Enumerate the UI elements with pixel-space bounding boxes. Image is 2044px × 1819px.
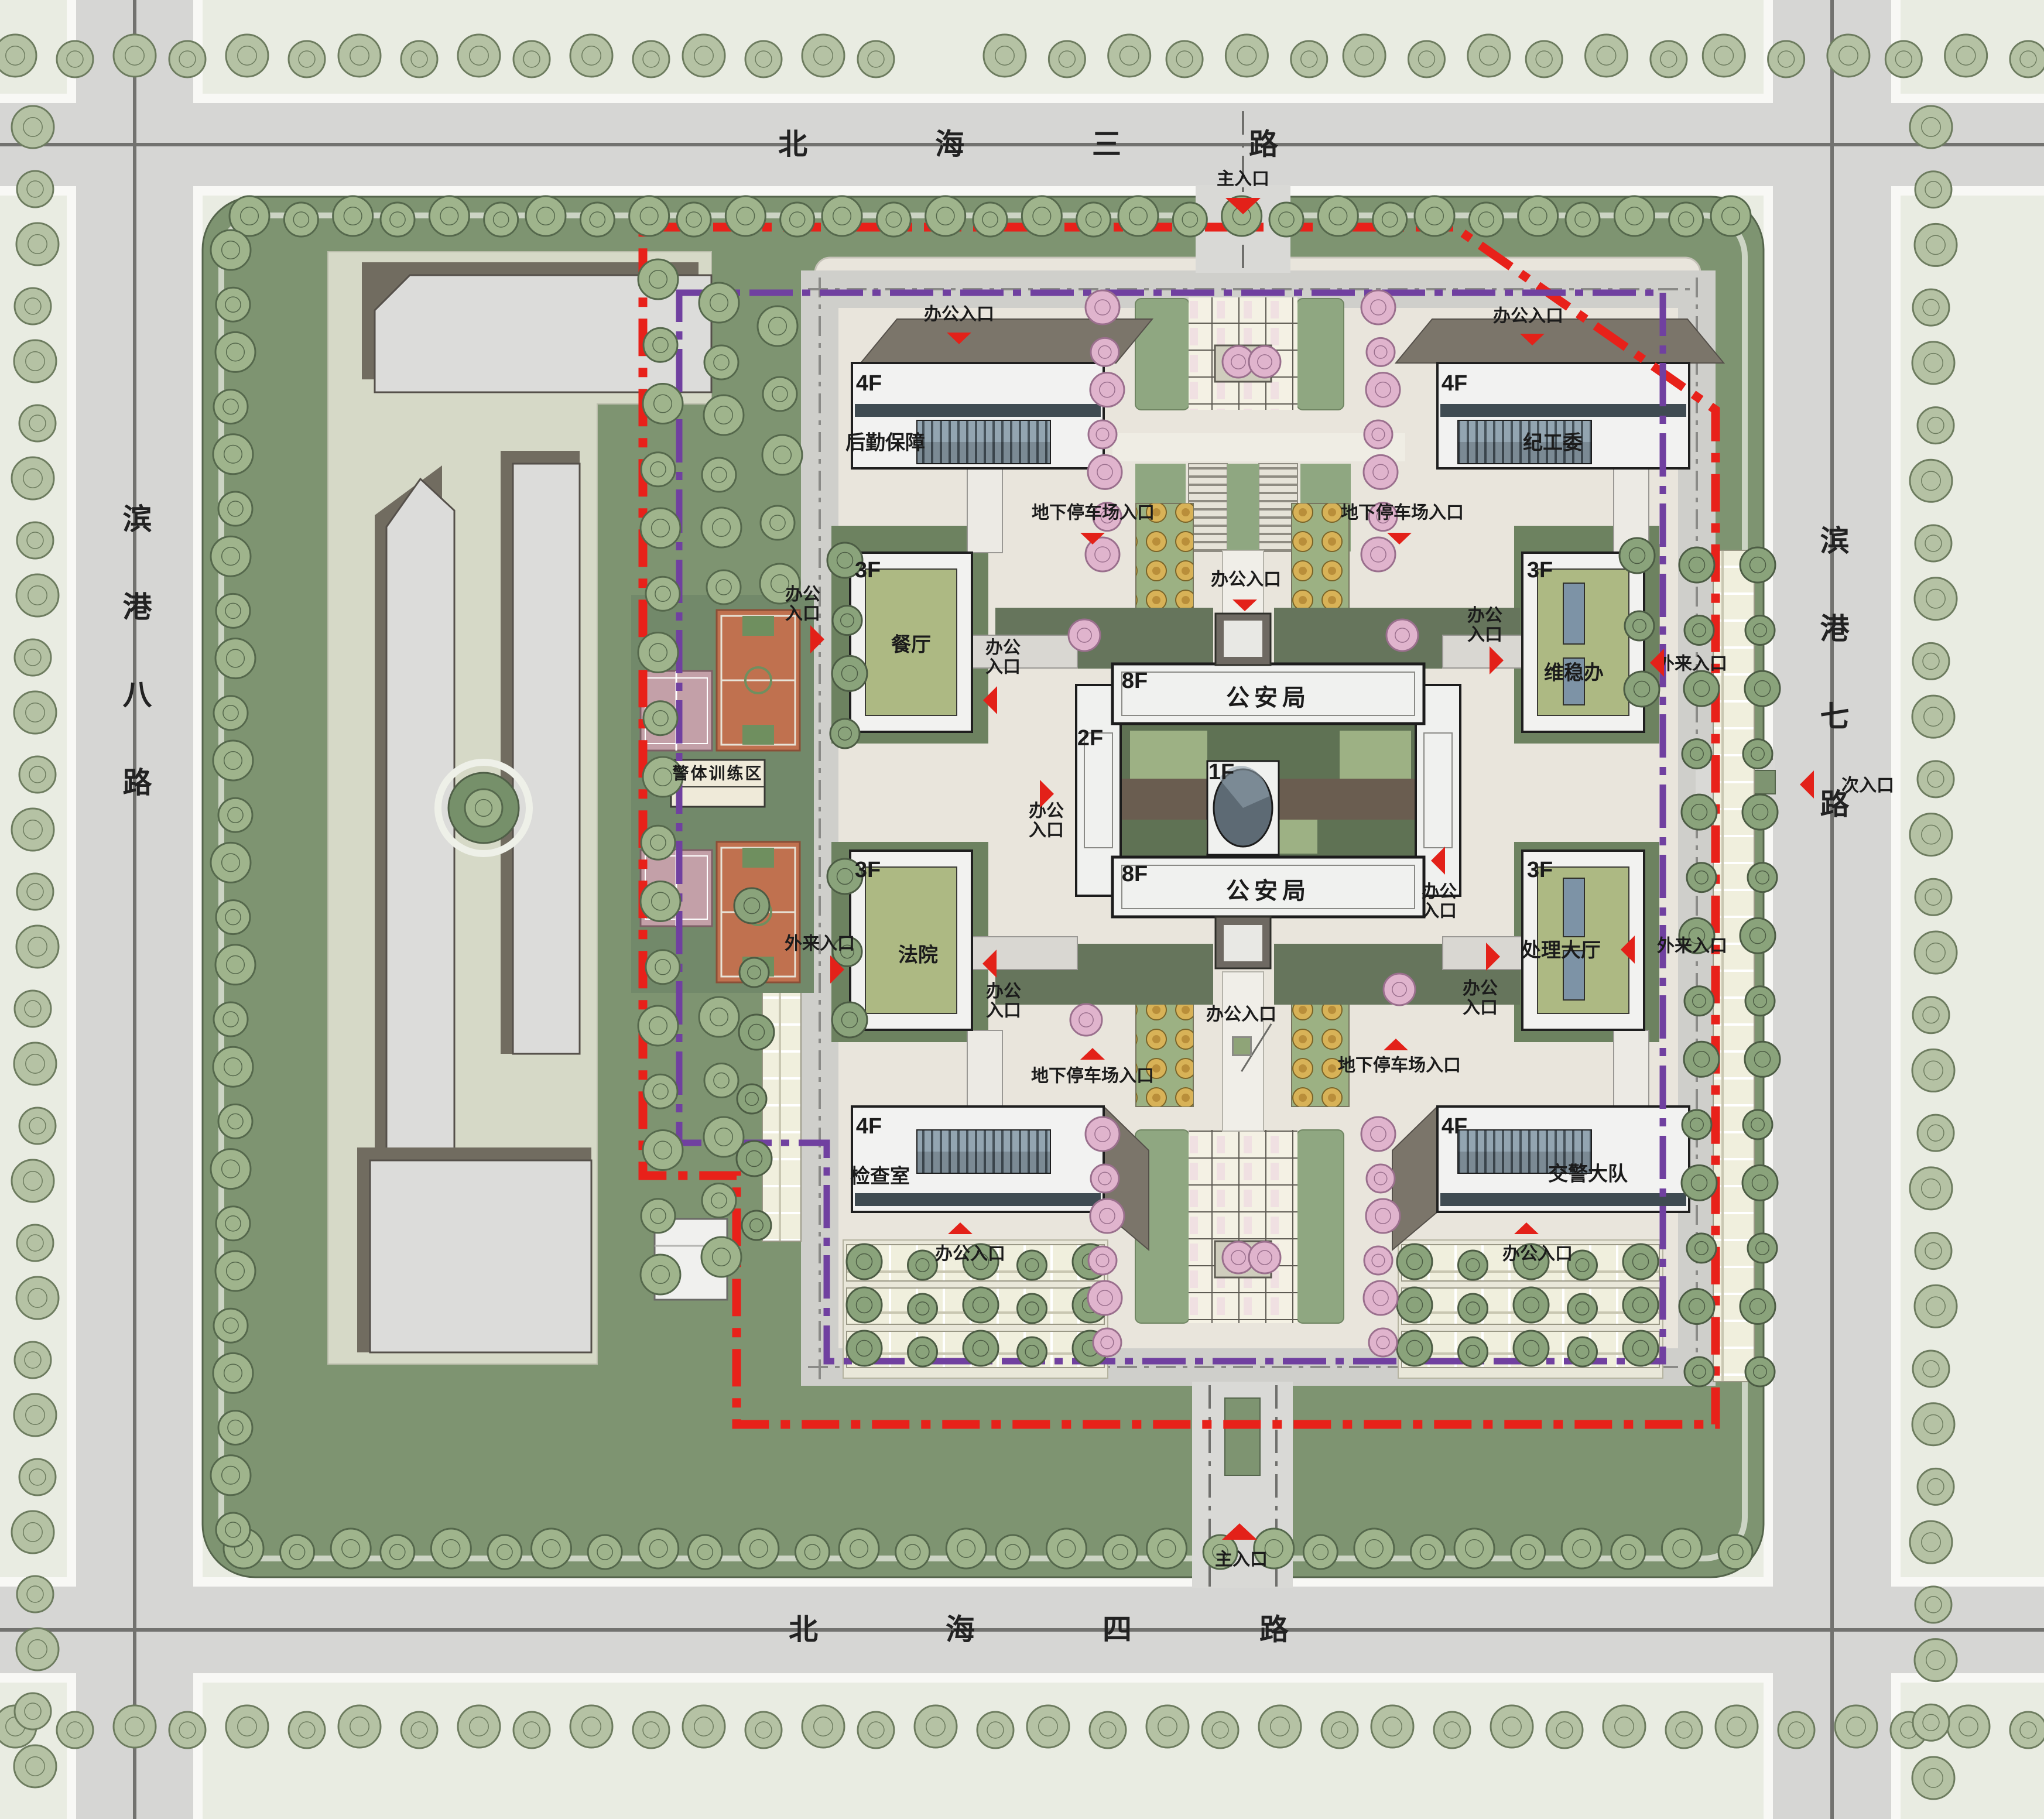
tree-icon — [704, 1064, 738, 1098]
tree-icon — [1918, 761, 1954, 797]
tree-icon — [214, 390, 248, 424]
tree-icon — [1745, 1357, 1775, 1386]
basketball-court-upper — [717, 610, 800, 751]
tree-icon — [946, 1529, 986, 1568]
tree-icon — [216, 594, 250, 628]
tree-icon — [745, 41, 782, 77]
tree-icon — [1511, 1535, 1545, 1569]
tree-icon — [847, 1287, 882, 1323]
tree-icon — [215, 945, 255, 985]
tree-icon — [1468, 35, 1510, 77]
tree-icon — [1173, 203, 1207, 237]
tree-icon — [1778, 1712, 1814, 1748]
building-label-public-security: 公安局 — [1226, 878, 1310, 904]
tree-icon — [381, 1535, 415, 1569]
tree-icon — [734, 888, 769, 923]
building-label-stability-office: 维稳办 — [1544, 662, 1604, 684]
floor-tag: 3F — [1527, 559, 1553, 583]
tree-icon — [570, 1705, 612, 1748]
tree-icon — [12, 1511, 54, 1553]
tree-icon — [1454, 1529, 1494, 1568]
tree-icon — [1568, 1337, 1597, 1366]
tree-icon — [1679, 547, 1714, 583]
main-entrance-north-label: 主入口 — [1217, 170, 1269, 189]
tree-icon — [114, 1705, 156, 1748]
central-complex — [1076, 614, 1460, 968]
tree-icon — [1364, 1281, 1398, 1315]
tree-icon — [16, 223, 59, 265]
tree-icon — [429, 196, 469, 236]
tree-icon — [1415, 196, 1454, 236]
tree-icon — [1491, 1705, 1533, 1748]
tree-icon — [1366, 373, 1400, 407]
tree-icon — [17, 522, 53, 559]
entrance-arrow-icon — [1486, 943, 1500, 971]
entrance-arrow-icon — [1514, 1222, 1539, 1234]
tree-icon — [725, 196, 765, 236]
tree-icon — [1369, 1328, 1397, 1356]
tree-icon — [677, 203, 711, 237]
tree-icon — [289, 41, 325, 77]
office-entrance-label: 办公入口 — [1493, 307, 1563, 326]
tree-icon — [213, 1353, 253, 1393]
tree-icon — [745, 1712, 782, 1748]
tree-icon — [1562, 1529, 1601, 1568]
tree-icon — [57, 1712, 93, 1748]
tree-icon — [1743, 739, 1772, 769]
tree-icon — [57, 41, 93, 77]
tree-icon — [338, 35, 381, 77]
tree-icon — [12, 809, 54, 851]
entrance-arrow-icon — [1621, 936, 1635, 964]
tree-icon — [926, 196, 965, 236]
tree-icon — [14, 691, 56, 734]
road-label-north: 北海三路 — [778, 129, 1406, 161]
floor-tag: 3F — [855, 559, 881, 583]
site-plan: 北海三路 北海四路 滨港八路 滨港七路 主入口 主入口 次入口 办公入口 办公入… — [0, 0, 2044, 1819]
tree-icon — [996, 1535, 1030, 1569]
tree-icon — [1651, 41, 1687, 77]
tree-icon — [19, 756, 56, 793]
tree-icon — [1915, 1587, 1951, 1623]
tree-icon — [896, 1535, 930, 1569]
tree-icon — [211, 1149, 251, 1189]
tree-icon — [763, 377, 797, 411]
tree-icon — [1526, 41, 1562, 77]
tree-icon — [1586, 35, 1628, 77]
building-label-processing-hall: 处理大厅 — [1521, 940, 1601, 961]
tree-icon — [830, 719, 860, 748]
floor-tag: 8F — [1122, 862, 1148, 887]
tree-icon — [643, 1131, 683, 1170]
tree-icon — [15, 288, 51, 324]
tree-icon — [1225, 35, 1268, 77]
tree-icon — [1018, 1294, 1047, 1323]
tree-icon — [216, 287, 250, 321]
tree-icon — [214, 696, 248, 730]
tree-icon — [1910, 1167, 1952, 1210]
tree-icon — [513, 41, 550, 77]
flag-marker — [1232, 1036, 1252, 1056]
tree-icon — [984, 35, 1026, 77]
entrance-arrow-icon — [947, 333, 971, 344]
tree-icon — [1603, 1705, 1645, 1748]
tree-icon — [401, 1712, 437, 1748]
training-zone-label: 警体训练区 — [672, 765, 763, 783]
tree-icon — [14, 1043, 56, 1085]
tree-icon — [1088, 1246, 1117, 1275]
tree-icon — [638, 1006, 678, 1046]
tree-icon — [1915, 172, 1951, 208]
tree-icon — [643, 328, 677, 362]
tree-icon — [1915, 1639, 1957, 1681]
tree-icon — [1748, 1234, 1777, 1263]
tree-icon — [280, 1535, 314, 1569]
tree-icon — [14, 340, 56, 382]
tree-icon — [1913, 997, 1949, 1033]
parking-entrance-label: 地下停车场入口 — [1338, 1056, 1461, 1075]
tree-icon — [1915, 525, 1951, 561]
tree-icon — [643, 701, 677, 735]
tree-icon — [1915, 224, 1957, 266]
tree-icon — [839, 1529, 879, 1568]
tree-icon — [761, 506, 795, 540]
tree-icon — [1745, 986, 1775, 1016]
building-label-inspection-room: 检查室 — [850, 1166, 910, 1187]
floor-tag: 3F — [1527, 858, 1553, 883]
tree-icon — [638, 633, 678, 673]
tree-icon — [1410, 1535, 1444, 1569]
tree-icon — [1568, 1294, 1597, 1323]
office-entrance-label: 办公入口 — [783, 585, 823, 624]
visitor-entrance-label: 外来入口 — [785, 934, 855, 954]
tree-icon — [1768, 41, 1805, 77]
tree-icon — [822, 196, 862, 236]
tree-icon — [1373, 203, 1407, 237]
entrance-arrow-icon — [1232, 600, 1257, 611]
tree-icon — [1684, 1042, 1719, 1077]
building-label-traffic-police: 交警大队 — [1548, 1163, 1628, 1185]
entrance-arrow-icon — [1040, 780, 1054, 808]
tree-icon — [211, 1455, 251, 1495]
entrance-arrow-icon — [1650, 649, 1664, 677]
tree-icon — [1666, 1712, 1702, 1748]
tree-icon — [1614, 196, 1654, 236]
tree-icon — [643, 384, 683, 424]
tree-icon — [1742, 1165, 1778, 1200]
entrance-arrow-icon — [1080, 533, 1105, 544]
tree-icon — [213, 741, 253, 780]
tree-icon — [1354, 1529, 1394, 1568]
tree-icon — [1046, 1529, 1086, 1568]
tree-icon — [465, 789, 502, 827]
tree-icon — [458, 35, 500, 77]
tree-icon — [877, 203, 910, 237]
tree-icon — [1146, 1705, 1189, 1748]
tree-icon — [1291, 41, 1327, 77]
tree-icon — [646, 950, 680, 984]
tree-icon — [832, 1002, 867, 1037]
parking-entrance-label: 地下停车场入口 — [1341, 503, 1464, 523]
tree-icon — [858, 41, 894, 77]
tree-icon — [1682, 1110, 1711, 1139]
tree-icon — [737, 1084, 766, 1114]
parking-entrance-label: 地下停车场入口 — [1032, 503, 1155, 523]
tree-icon — [641, 453, 675, 487]
tree-icon — [214, 1308, 248, 1342]
tree-icon — [1745, 671, 1780, 706]
tree-icon — [1088, 1281, 1122, 1315]
tree-icon — [1910, 106, 1952, 148]
entrance-arrow-icon — [983, 686, 997, 714]
tree-icon — [802, 35, 844, 77]
road-label-west: 滨港八路 — [119, 503, 151, 855]
tree-icon — [1514, 1331, 1549, 1366]
tree-icon — [908, 1294, 937, 1323]
tree-icon — [1343, 35, 1385, 77]
tree-icon — [1086, 1117, 1119, 1151]
building-label-canteen: 餐厅 — [891, 634, 931, 656]
tree-icon — [847, 1244, 882, 1279]
road-label-east: 滨港七路 — [1816, 525, 1848, 876]
tree-icon — [1947, 1705, 1990, 1748]
tree-icon — [639, 1529, 679, 1568]
tree-icon — [488, 1535, 522, 1569]
tree-icon — [16, 926, 59, 968]
tree-icon — [1620, 538, 1655, 573]
tree-icon — [1249, 1242, 1281, 1273]
tree-icon — [1458, 1337, 1488, 1366]
tree-icon — [1546, 1712, 1583, 1748]
tree-icon — [1684, 1357, 1714, 1386]
west-south-building — [370, 1160, 591, 1352]
west-east-building — [513, 464, 580, 1054]
tree-icon — [580, 203, 614, 237]
main-entrance-south-arrow-icon — [1222, 1523, 1257, 1540]
tree-icon — [1684, 616, 1714, 645]
office-entrance-label: 办公入口 — [935, 1245, 1005, 1264]
tree-icon — [1259, 1705, 1301, 1748]
tree-icon — [1364, 1246, 1392, 1275]
tree-icon — [1910, 814, 1952, 856]
tree-icon — [1049, 41, 1085, 77]
tree-icon — [1069, 619, 1100, 651]
tree-icon — [114, 35, 156, 77]
tree-icon — [513, 1712, 550, 1748]
tree-icon — [833, 606, 862, 635]
office-entrance-label: 办公入口 — [1419, 882, 1459, 921]
tree-icon — [12, 1160, 54, 1202]
tree-icon — [17, 1225, 53, 1261]
tree-icon — [1386, 619, 1418, 651]
tree-icon — [1088, 420, 1117, 448]
entrance-arrow-icon — [1384, 1039, 1408, 1050]
office-entrance-label: 办公入口 — [1206, 1005, 1276, 1025]
tree-icon — [683, 35, 725, 77]
entrance-arrow-icon — [1490, 646, 1504, 674]
tree-icon — [1118, 196, 1158, 236]
tree-icon — [1623, 1331, 1658, 1366]
tree-icon — [211, 842, 251, 882]
entrance-arrow-icon — [1080, 1048, 1105, 1060]
tree-icon — [331, 1529, 371, 1568]
office-entrance-label: 办公入口 — [983, 638, 1023, 677]
tree-icon — [1912, 1757, 1954, 1799]
tree-icon — [1913, 289, 1949, 326]
entrance-arrow-icon — [810, 625, 824, 653]
tree-icon — [1093, 1328, 1121, 1356]
tree-icon — [707, 570, 741, 604]
tree-icon — [1679, 1289, 1714, 1324]
tree-icon — [1827, 35, 1870, 77]
tree-icon — [1108, 35, 1151, 77]
tree-icon — [1269, 203, 1303, 237]
tree-icon — [1703, 35, 1745, 77]
main-entrance-south-label: 主入口 — [1215, 1550, 1268, 1570]
tree-icon — [214, 1002, 248, 1036]
tree-icon — [1910, 1521, 1952, 1563]
floor-tag: 4F — [1442, 1115, 1467, 1139]
floor-tag: 4F — [1442, 372, 1467, 396]
tree-icon — [1091, 338, 1119, 366]
west-sw-building — [386, 479, 454, 1229]
floor-tag: 3F — [855, 858, 881, 883]
entrance-arrow-icon — [1431, 847, 1445, 875]
tree-icon — [1915, 931, 1957, 974]
tree-icon — [641, 1199, 675, 1233]
tree-icon — [16, 1277, 59, 1319]
tree-icon — [832, 656, 867, 691]
tree-icon — [699, 997, 739, 1037]
tree-icon — [1303, 1535, 1337, 1569]
tree-icon — [1103, 1535, 1137, 1569]
tree-icon — [1748, 863, 1777, 892]
tree-icon — [1669, 203, 1703, 237]
tree-icon — [216, 900, 250, 934]
tree-icon — [216, 1207, 250, 1241]
tree-icon — [1945, 35, 1987, 77]
floor-tag: 4F — [856, 1115, 882, 1139]
tree-icon — [1090, 1199, 1124, 1233]
tree-icon — [484, 203, 518, 237]
tree-icon — [1367, 338, 1395, 366]
tree-icon — [688, 1535, 722, 1569]
tree-icon — [333, 196, 373, 236]
tree-icon — [218, 1104, 252, 1138]
tree-icon — [1070, 1004, 1102, 1036]
office-entrance-label: 办公入口 — [924, 305, 994, 324]
tree-icon — [1716, 1705, 1758, 1748]
tree-icon — [1885, 41, 1922, 77]
tree-icon — [526, 196, 566, 236]
tree-icon — [641, 825, 675, 859]
tree-icon — [633, 1712, 669, 1748]
tree-icon — [1090, 373, 1124, 407]
tree-icon — [847, 1331, 882, 1366]
tree-icon — [702, 458, 736, 492]
tree-icon — [1623, 1244, 1658, 1279]
tree-icon — [973, 203, 1007, 237]
entrance-arrow-icon — [830, 955, 844, 984]
tree-icon — [1086, 290, 1119, 324]
tree-icon — [1566, 203, 1600, 237]
tree-icon — [1913, 643, 1949, 679]
tree-icon — [19, 1459, 56, 1495]
tree-icon — [1397, 1331, 1432, 1366]
tree-icon — [1364, 455, 1398, 489]
tree-icon — [2010, 1712, 2044, 1748]
tree-icon — [1018, 1337, 1047, 1366]
tree-icon — [739, 958, 769, 987]
tree-icon — [1018, 1251, 1047, 1280]
tree-icon — [226, 1705, 268, 1748]
tree-icon — [1915, 578, 1957, 620]
tree-icon — [1742, 794, 1778, 830]
tree-icon — [284, 203, 318, 237]
tree-icon — [14, 1745, 56, 1787]
tree-icon — [17, 873, 53, 910]
tree-icon — [1915, 1285, 1957, 1327]
tree-icon — [1743, 1110, 1772, 1139]
tree-icon — [1022, 196, 1062, 236]
tree-icon — [19, 1108, 56, 1144]
tree-icon — [1027, 1705, 1069, 1748]
tree-icon — [570, 35, 612, 77]
tree-icon — [704, 345, 738, 379]
tree-icon — [1913, 1704, 1949, 1741]
tree-icon — [643, 1074, 677, 1108]
tree-icon — [1090, 1712, 1126, 1748]
tree-icon — [1740, 918, 1775, 953]
tree-icon — [17, 1576, 53, 1612]
tree-icon — [1371, 1705, 1413, 1748]
tree-icon — [218, 492, 252, 526]
tree-icon — [699, 283, 739, 323]
office-entrance-label: 办公入口 — [1502, 1245, 1573, 1264]
tree-icon — [218, 1411, 252, 1445]
tree-icon — [1915, 879, 1951, 915]
tree-icon — [1321, 1712, 1358, 1748]
entrance-arrow-icon — [1520, 334, 1545, 345]
tree-icon — [908, 1251, 937, 1280]
tree-icon — [963, 1331, 998, 1366]
tree-icon — [1367, 1164, 1395, 1193]
tree-icon — [1711, 196, 1751, 236]
tree-icon — [1918, 407, 1954, 444]
tree-icon — [218, 798, 252, 832]
office-entrance-label: 办公入口 — [1460, 979, 1500, 1018]
tree-icon — [1408, 41, 1444, 77]
tree-icon — [1915, 1233, 1951, 1269]
tree-icon — [216, 1513, 250, 1547]
tree-icon — [737, 1141, 772, 1176]
tree-icon — [211, 230, 251, 270]
visitor-entrance-label: 外来入口 — [1657, 655, 1727, 674]
tree-icon — [12, 106, 54, 148]
tree-icon — [458, 1705, 500, 1748]
tree-icon — [338, 1705, 381, 1748]
tree-icon — [1910, 460, 1952, 502]
tree-icon — [169, 1712, 206, 1748]
tree-icon — [977, 1712, 1014, 1748]
tree-icon — [1918, 1115, 1954, 1151]
tree-icon — [1913, 1351, 1949, 1387]
tree-icon — [15, 1693, 51, 1729]
floor-tag: 8F — [1122, 669, 1148, 694]
tree-icon — [532, 1529, 571, 1568]
tree-icon — [762, 435, 802, 475]
tree-icon — [1361, 1117, 1395, 1151]
